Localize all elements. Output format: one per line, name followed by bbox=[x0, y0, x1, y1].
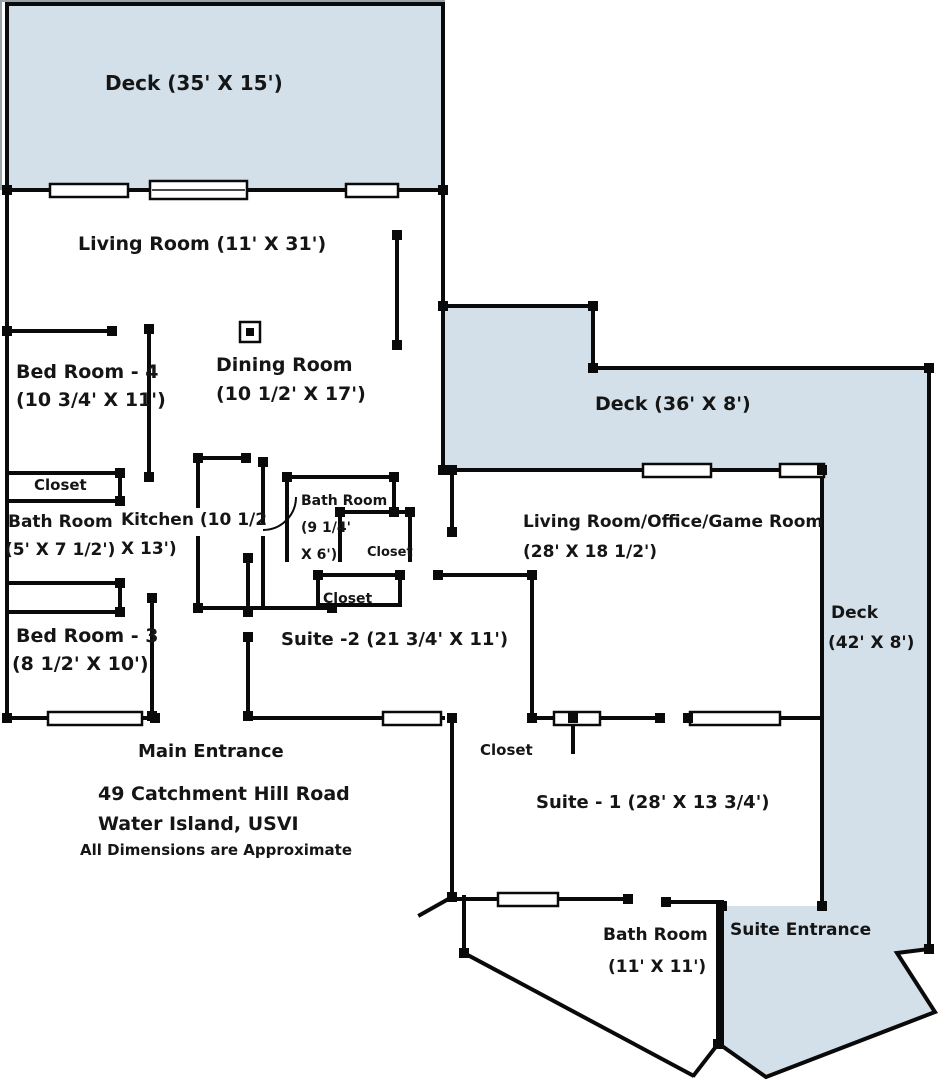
kitchen-label: Kitchen (10 1/2 bbox=[121, 510, 267, 530]
bath-room-small-dims: (5' X 7 1/2') bbox=[5, 540, 115, 560]
bath-room-suite1-dims: (11' X 11') bbox=[608, 957, 706, 977]
closet-mid-upper-label: Closet bbox=[367, 545, 413, 560]
living-room-label: Living Room (11' X 31') bbox=[78, 233, 326, 255]
deck-right-side-dims: (42' X 8') bbox=[828, 633, 914, 653]
bath-room-mid-dims2: X 6') bbox=[301, 547, 337, 563]
window bbox=[48, 712, 142, 725]
disclaimer-text: All Dimensions are Approximate bbox=[80, 841, 352, 859]
deck-upper-right-label: Deck (36' X 8') bbox=[595, 393, 751, 415]
closet-mid-lower-label: Closet bbox=[323, 591, 373, 607]
suite1-bottom-wall bbox=[452, 899, 722, 902]
suite-2-label: Suite -2 (21 3/4' X 11') bbox=[281, 629, 508, 650]
kitchen-dims: X 13') bbox=[121, 539, 177, 559]
deck-top-region bbox=[7, 4, 443, 188]
window bbox=[346, 184, 398, 197]
window bbox=[383, 712, 441, 725]
window bbox=[498, 893, 558, 906]
living-office-game-dims: (28' X 18 1/2') bbox=[523, 542, 657, 562]
closet-suite1-label: Closet bbox=[480, 741, 533, 759]
bed-room-3-dims: (8 1/2' X 10') bbox=[12, 653, 149, 675]
living-office-game-label: Living Room/Office/Game Room bbox=[523, 512, 823, 532]
floor-plan-canvas: Deck (35' X 15') Living Room (11' X 31')… bbox=[0, 0, 938, 1080]
deck-top-label: Deck (35' X 15') bbox=[105, 71, 283, 95]
window bbox=[643, 464, 711, 477]
address-line-1: 49 Catchment Hill Road bbox=[98, 783, 350, 805]
floor-plan-page: Deck (35' X 15') Living Room (11' X 31')… bbox=[0, 0, 938, 1080]
bath-room-suite1-label: Bath Room bbox=[603, 925, 708, 945]
kitchen-door-arc bbox=[263, 497, 296, 530]
window bbox=[50, 184, 128, 197]
window bbox=[690, 712, 780, 725]
dining-room-dims: (10 1/2' X 17') bbox=[216, 383, 366, 405]
closet-bed4-label: Closet bbox=[34, 476, 87, 494]
suite-1-label: Suite - 1 (28' X 13 3/4') bbox=[536, 792, 769, 813]
suite-entrance-label: Suite Entrance bbox=[730, 920, 871, 940]
bed-room-4-label: Bed Room - 4 bbox=[16, 361, 158, 383]
main-entrance-label: Main Entrance bbox=[138, 741, 284, 762]
dining-room-label: Dining Room bbox=[216, 354, 353, 376]
bath11-walls bbox=[464, 897, 718, 1075]
deck-right-side-label: Deck bbox=[831, 603, 879, 623]
dining-column-core bbox=[246, 328, 254, 336]
address-line-2: Water Island, USVI bbox=[98, 813, 299, 835]
closet-bath5-walls bbox=[7, 583, 120, 612]
bed-room-4-dims: (10 3/4' X 11') bbox=[16, 389, 166, 411]
bed-room-3-label: Bed Room - 3 bbox=[16, 625, 158, 647]
bath-room-mid-label: Bath Room bbox=[301, 493, 387, 509]
bath-room-mid-dims1: (9 1/4' bbox=[301, 520, 351, 536]
bath-room-small-label: Bath Room bbox=[8, 512, 113, 532]
